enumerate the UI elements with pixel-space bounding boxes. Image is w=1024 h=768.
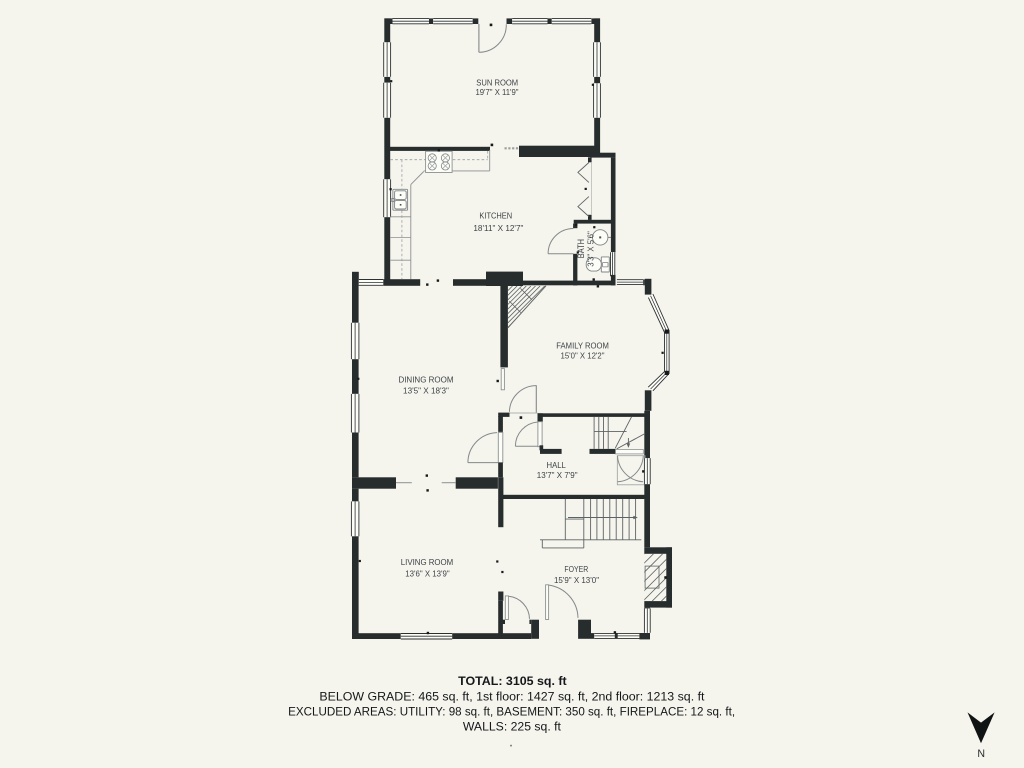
svg-text:15'9" X 13'0": 15'9" X 13'0" bbox=[554, 575, 599, 585]
svg-text:3'3" X 5'6": 3'3" X 5'6" bbox=[587, 231, 596, 267]
svg-text:WALLS: 225 sq. ft: WALLS: 225 sq. ft bbox=[463, 719, 562, 733]
svg-text:13'5" X 18'3": 13'5" X 18'3" bbox=[403, 385, 449, 395]
svg-text:LIVING ROOM: LIVING ROOM bbox=[401, 557, 454, 567]
svg-text:BATH: BATH bbox=[576, 239, 586, 258]
svg-text:13'7" X 7'9": 13'7" X 7'9" bbox=[537, 470, 578, 480]
svg-text:TOTAL: 3105 sq. ft: TOTAL: 3105 sq. ft bbox=[458, 674, 567, 688]
svg-text:HALL: HALL bbox=[547, 460, 566, 470]
svg-text:13'6" X 13'9": 13'6" X 13'9" bbox=[405, 569, 449, 579]
svg-text:FAMILY ROOM: FAMILY ROOM bbox=[556, 341, 609, 351]
svg-text:EXCLUDED AREAS: UTILITY: 98 sq: EXCLUDED AREAS: UTILITY: 98 sq. ft, BASE… bbox=[288, 705, 735, 719]
svg-text:DINING ROOM: DINING ROOM bbox=[398, 374, 453, 384]
svg-text:FOYER: FOYER bbox=[564, 564, 588, 574]
svg-text:SUN ROOM: SUN ROOM bbox=[476, 77, 518, 87]
svg-text:19'7" X 11'9": 19'7" X 11'9" bbox=[475, 87, 518, 97]
svg-text:N: N bbox=[977, 748, 985, 760]
svg-text:KITCHEN: KITCHEN bbox=[479, 211, 512, 221]
svg-text:18'11" X 12'7": 18'11" X 12'7" bbox=[473, 223, 523, 233]
svg-text:BELOW GRADE: 465 sq. ft, 1st f: BELOW GRADE: 465 sq. ft, 1st floor: 1427… bbox=[319, 689, 705, 703]
svg-text:15'0" X 12'2": 15'0" X 12'2" bbox=[561, 351, 605, 361]
